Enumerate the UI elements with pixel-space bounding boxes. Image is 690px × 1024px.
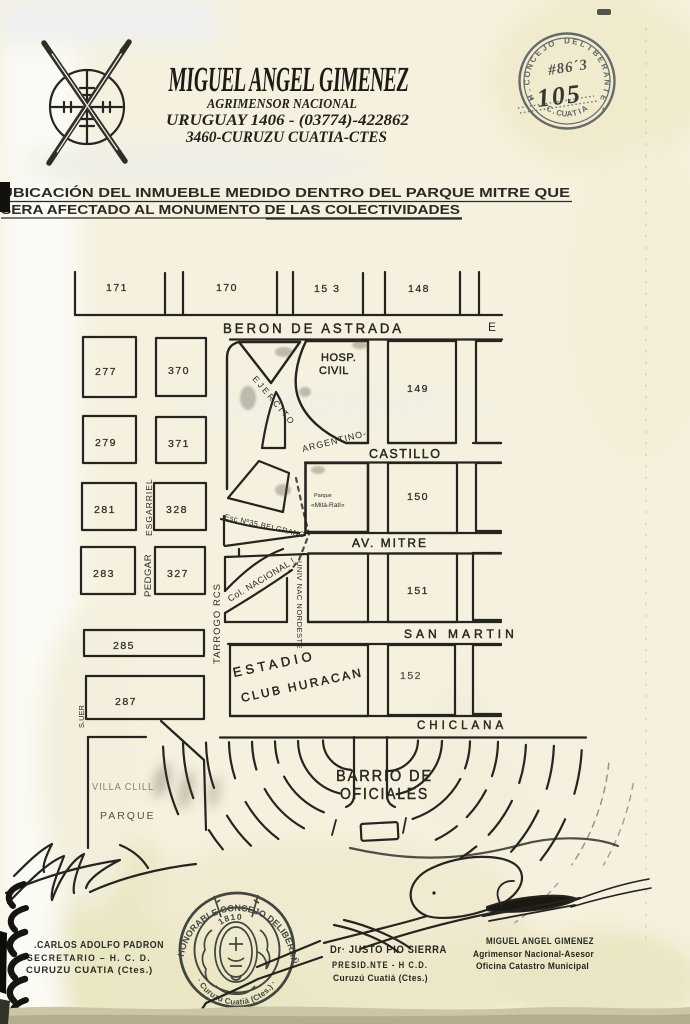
svg-text:171: 171 — [106, 282, 128, 294]
svg-text:Oficina Catastro Municipal: Oficina Catastro Municipal — [476, 961, 589, 971]
svg-text:PARQUE: PARQUE — [100, 810, 156, 822]
svg-text:TARROGO RCS: TARROGO RCS — [212, 583, 223, 664]
svg-text:15 3: 15 3 — [314, 283, 340, 295]
svg-text:Agrimensor Nacional-Asesor: Agrimensor Nacional-Asesor — [473, 949, 594, 959]
svg-text:149: 149 — [407, 383, 429, 395]
svg-text:279: 279 — [95, 437, 117, 449]
svg-text:URUGUAY 1406 - (03774)-422862: URUGUAY 1406 - (03774)-422862 — [166, 112, 409, 129]
svg-text:OFICIALES: OFICIALES — [340, 786, 429, 803]
svg-text:*: * — [530, 95, 534, 105]
svg-text:N: N — [602, 79, 611, 85]
svg-text:*: * — [602, 106, 606, 116]
svg-text:.CARLOS ADOLFO PADRON: .CARLOS ADOLFO PADRON — [34, 939, 164, 951]
svg-text:C: C — [522, 79, 531, 85]
svg-text:Curuzú Cuatiá (Ctes.): Curuzú Cuatiá (Ctes.) — [333, 973, 428, 984]
svg-text:UBICACIÓN DEL INMUEBLE MEDI: UBICACIÓN DEL INMUEBLE MEDIDO DENTRO DEL… — [1, 185, 570, 200]
svg-text:285: 285 — [113, 640, 135, 652]
svg-text:371: 371 — [168, 438, 190, 450]
svg-text:Parque: Parque — [314, 493, 332, 499]
svg-text:170: 170 — [216, 282, 238, 294]
svg-text:150: 150 — [407, 491, 429, 503]
svg-text:SECRETARIO – H. C. D.: SECRETARIO – H. C. D. — [27, 953, 151, 963]
svg-text:3460-CURUZU CUATIA-CTES: 3460-CURUZU CUATIA-CTES — [185, 129, 387, 146]
svg-text:VILLA CLILL: VILLA CLILL — [92, 782, 154, 793]
svg-text:CHICLANA: CHICLANA — [417, 720, 507, 732]
svg-text:E: E — [488, 320, 496, 334]
svg-text:281: 281 — [94, 504, 116, 516]
svg-text:BERON DE ASTRADA: BERON DE ASTRADA — [223, 321, 404, 336]
svg-text:CIVIL: CIVIL — [319, 365, 349, 377]
svg-text:ESGARRIEL: ESGARRIEL — [144, 478, 154, 536]
svg-text:PRESID.NTE - H C.D.: PRESID.NTE - H C.D. — [332, 960, 428, 971]
svg-text:«Mitá-Ratí»: «Mitá-Ratí» — [311, 502, 345, 509]
svg-text:CASTILLO: CASTILLO — [369, 447, 441, 461]
svg-text:AGRIMENSOR NACIONAL: AGRIMENSOR NACIONAL — [206, 97, 357, 112]
svg-text:CURUZU CUATІA (Ctes.): CURUZU CUATІA (Ctes.) — [26, 965, 153, 976]
svg-text:HOSP.: HOSP. — [321, 352, 356, 364]
svg-text:MIGUEL ANGEL GIMENEZ: MIGUEL ANGEL GIMENEZ — [167, 60, 410, 99]
svg-text:PEDGAR: PEDGAR — [143, 554, 154, 597]
svg-text:328: 328 — [166, 504, 188, 516]
svg-text:151: 151 — [407, 585, 429, 597]
svg-text:S.UER: S.UER — [77, 704, 86, 728]
svg-text:AV. MITRE: AV. MITRE — [352, 536, 428, 550]
svg-text:370: 370 — [168, 365, 190, 377]
svg-text:148: 148 — [408, 283, 430, 295]
svg-text:277: 277 — [95, 366, 117, 378]
svg-text:283: 283 — [93, 568, 115, 580]
svg-text:152: 152 — [400, 670, 422, 682]
svg-text:BARRIO DE: BARRIO DE — [336, 768, 433, 785]
svg-text:287: 287 — [115, 696, 137, 708]
svg-text:UNIV NAC NORDESTE: UNIV NAC NORDESTE — [295, 561, 304, 649]
svg-text:105: 105 — [535, 79, 583, 113]
svg-text:SERA AFECTADO AL MONUMENTO DE: SERA AFECTADO AL MONUMENTO DE LAS COLECT… — [1, 202, 460, 217]
svg-text:Dr· JUSTO PIO SIERRA: Dr· JUSTO PIO SIERRA — [330, 944, 447, 956]
svg-text:327: 327 — [167, 568, 189, 580]
svg-text:SAN MARTIN: SAN MARTIN — [404, 627, 518, 641]
svg-text:MIGUEL ANGEL GIMENEZ: MIGUEL ANGEL GIMENEZ — [486, 936, 594, 947]
svg-text:D: D — [564, 37, 570, 46]
